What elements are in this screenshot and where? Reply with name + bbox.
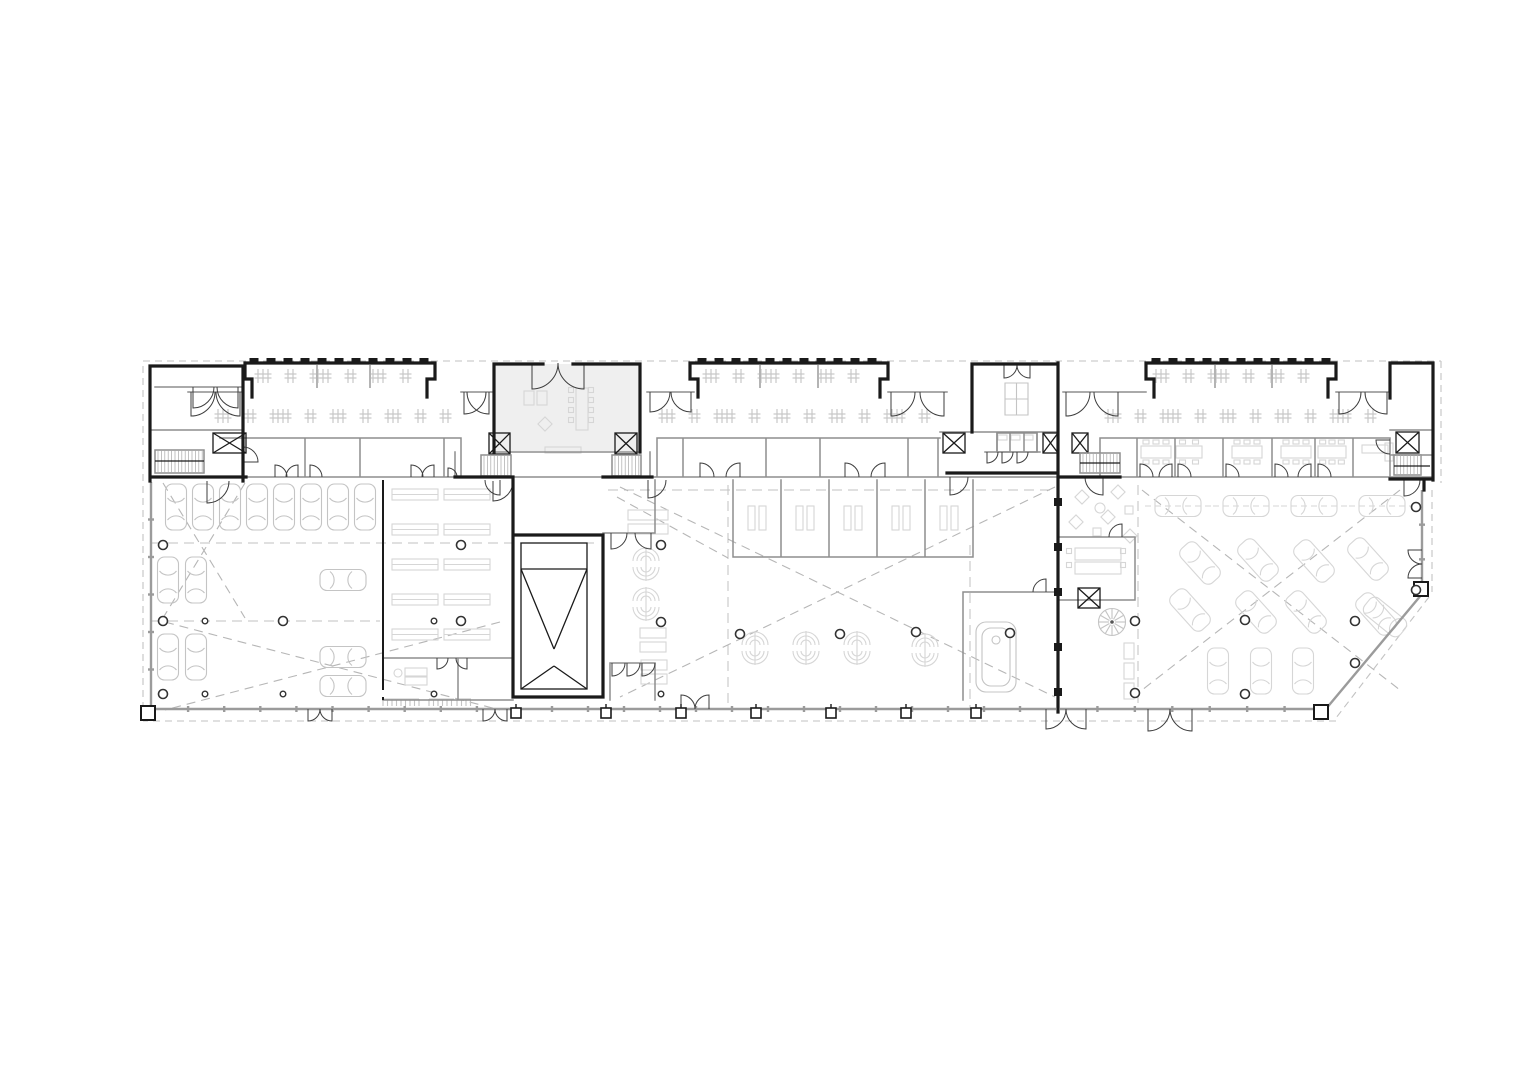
car-windshield (330, 678, 352, 695)
chair (1143, 460, 1149, 464)
equipment-cluster-icon (742, 631, 768, 665)
bike-icon (1365, 409, 1372, 423)
door-swing-icon (216, 392, 240, 416)
car-icon (355, 484, 376, 530)
lounge-diamond (1075, 490, 1089, 504)
bike-icon (724, 409, 731, 423)
workbench-icon (392, 594, 438, 605)
lounge-circle (394, 669, 402, 677)
workbench-icon (444, 489, 490, 500)
car-icon (1235, 536, 1281, 584)
chair (1254, 460, 1260, 464)
bike-icon (350, 369, 357, 383)
bike-icon (1218, 369, 1225, 383)
door-swing-icon (1178, 464, 1191, 477)
column-icon (1006, 629, 1015, 638)
car-icon (1293, 648, 1314, 694)
column-small-icon (658, 691, 664, 697)
column-icon (159, 617, 168, 626)
stair-icon (612, 455, 641, 476)
window-pier (318, 358, 327, 364)
colonnade-pier (901, 708, 911, 718)
door-swing-icon (1046, 709, 1066, 729)
car-icon (220, 484, 241, 530)
bike-icon (340, 409, 347, 423)
car-body (274, 484, 295, 530)
door-swing-icon (1085, 477, 1103, 495)
bike-icon (1183, 369, 1190, 383)
elevator-x (213, 433, 246, 453)
door-swing-icon (1033, 579, 1046, 592)
corner-pier (141, 706, 155, 720)
window-pier (284, 358, 293, 364)
window-pier (817, 358, 826, 364)
bike-icon (310, 409, 317, 423)
chair (1293, 440, 1299, 444)
car-windshield (1178, 598, 1205, 626)
bike-icon (823, 369, 830, 383)
door-swing-icon (1408, 550, 1422, 564)
bike-icon (375, 369, 382, 383)
car-body (1208, 648, 1229, 694)
bike-icon (1285, 409, 1292, 423)
wc-stalls (997, 433, 1037, 452)
door-swing-icon (611, 533, 627, 549)
bike-icon (325, 369, 332, 383)
car-icon (1213, 496, 1279, 517)
window-pier (800, 358, 809, 364)
column-icon (457, 617, 466, 626)
column-icon (159, 690, 168, 699)
soft-fill-layer (495, 364, 639, 451)
car-body (1293, 648, 1314, 694)
bike-icon (1280, 409, 1287, 423)
car-windshield (330, 649, 352, 666)
bike-icon (245, 409, 252, 423)
spiral-stair-icon (1099, 609, 1126, 636)
bike-icon (713, 369, 720, 383)
bike-icon (385, 409, 392, 423)
bench-pad (807, 506, 814, 530)
furniture-rect (640, 628, 666, 638)
furniture-rect (405, 677, 427, 685)
window-pier (267, 358, 276, 364)
bike-icon (1158, 369, 1165, 383)
window-pier (386, 358, 395, 364)
door-swing-icon (700, 463, 714, 477)
bike-icon (1310, 409, 1317, 423)
door-swing-icon (1339, 392, 1361, 414)
bike-icon (335, 409, 342, 423)
bike-icon (768, 369, 775, 383)
canopy-dashed-line (1336, 597, 1429, 718)
window-pier (834, 358, 843, 364)
door-swing-icon (275, 465, 287, 477)
door-swing-icon (495, 709, 507, 721)
column-icon (657, 618, 666, 627)
car-windshield (276, 498, 293, 520)
car-body (1235, 536, 1281, 584)
door-swing-icon (320, 709, 332, 721)
chair (1320, 460, 1326, 464)
car-icon (247, 484, 268, 530)
door-swing-icon (726, 463, 740, 477)
bike-icon (1305, 409, 1312, 423)
window-pier (851, 358, 860, 364)
bike-icon (1223, 369, 1230, 383)
car-windshield (160, 648, 177, 670)
car-icon (1283, 588, 1329, 636)
chair (1234, 440, 1240, 444)
bike-icon (440, 409, 447, 423)
bike-icon (320, 369, 327, 383)
bike-icon (839, 409, 846, 423)
bike-icon (1225, 409, 1232, 423)
meeting-table-icon (1176, 440, 1202, 464)
window-pier (868, 358, 877, 364)
bike-icon (733, 369, 740, 383)
bench-pad (844, 506, 851, 530)
door-swing-icon (612, 663, 625, 676)
bench-pad (796, 506, 803, 530)
colonnade-pier (601, 708, 611, 718)
colonnade-pier (751, 708, 761, 718)
furniture-rect (1385, 443, 1393, 461)
party-wall-node (1054, 643, 1062, 651)
door-swing-icon (635, 533, 651, 549)
window-pier (1203, 358, 1212, 364)
bike-icon (708, 369, 715, 383)
bike-icon (1170, 409, 1177, 423)
window-pier (1254, 358, 1263, 364)
window-pier (698, 358, 707, 364)
workbench-icon (444, 559, 490, 570)
stair-icon (481, 455, 511, 476)
door-swing-icon (1066, 709, 1086, 729)
equipment-cluster-icon (912, 633, 938, 667)
door-swing-icon (1298, 464, 1311, 477)
car-icon (328, 484, 349, 530)
bike-icon (919, 409, 926, 423)
meeting-table-icon (1141, 440, 1171, 464)
gym-bench-icon (796, 506, 814, 530)
bike-icon (1200, 409, 1207, 423)
bench-pad (940, 506, 947, 530)
window-pier (783, 358, 792, 364)
elevator-x (1043, 433, 1058, 453)
bench-pad (855, 506, 862, 530)
bike-icon (779, 409, 786, 423)
window-pier (403, 358, 412, 364)
chair (1234, 460, 1240, 464)
spiral-center (1110, 620, 1114, 624)
car-body (247, 484, 268, 530)
car-body (320, 676, 366, 697)
floor-plan-drawing (0, 0, 1528, 1080)
column-icon (1241, 690, 1250, 699)
chair (1329, 460, 1335, 464)
chair (1320, 440, 1326, 444)
window-pier (369, 358, 378, 364)
furniture-rect (405, 668, 427, 676)
party-wall-node (1054, 588, 1062, 596)
furniture-rect (1075, 562, 1121, 574)
column-icon (912, 628, 921, 637)
car-icon (320, 676, 366, 697)
bike-icon (774, 409, 781, 423)
elevator-x (1072, 433, 1088, 453)
corner-pier (1314, 705, 1328, 719)
car-body (301, 484, 322, 530)
door-swing-icon (191, 392, 215, 416)
elevator-x (1078, 588, 1100, 608)
column-icon (1412, 503, 1421, 512)
bike-icon (445, 409, 452, 423)
door-swing-icon (627, 663, 640, 676)
equipment-cluster-icon (793, 631, 819, 665)
window-pier (1169, 358, 1178, 364)
car-icon (158, 634, 179, 680)
window-pier (1271, 358, 1280, 364)
bike-icon (1188, 369, 1195, 383)
chair (1244, 460, 1250, 464)
car-body (320, 570, 366, 591)
column-icon (836, 630, 845, 639)
colonnade-pier (971, 708, 981, 718)
furniture-rect (1125, 506, 1133, 514)
car-windshield (188, 648, 205, 670)
furniture-rect (640, 642, 666, 652)
door-swing-icon (987, 452, 998, 463)
chair (1254, 440, 1260, 444)
furniture-rect (998, 435, 1007, 440)
elevator-icon (1043, 433, 1058, 453)
car-icon (1281, 496, 1347, 517)
furniture-rect (1093, 528, 1101, 536)
bike-icon (265, 369, 272, 383)
bike-icon (829, 409, 836, 423)
bike-icon (270, 409, 277, 423)
window-pier (1220, 358, 1229, 364)
car-body (1177, 539, 1223, 587)
bench-pad (892, 506, 899, 530)
bike-icon (1105, 409, 1112, 423)
door-swing-icon (1094, 392, 1118, 416)
bike-icon (763, 369, 770, 383)
door-swing-icon (1066, 392, 1090, 416)
column-small-icon (202, 691, 208, 697)
chair (1303, 440, 1309, 444)
car-body (1233, 588, 1279, 636)
bike-icon (749, 409, 756, 423)
door-swing-icon (411, 465, 423, 477)
car-body (220, 484, 241, 530)
bike-icon (1298, 369, 1305, 383)
car-icon (1233, 588, 1279, 636)
door-swing-icon (1109, 524, 1122, 537)
car-windshield (1364, 602, 1391, 630)
meeting-table-icon (1281, 440, 1311, 464)
bike-icon (828, 369, 835, 383)
window-pier (1288, 358, 1297, 364)
window-pier (1322, 358, 1331, 364)
column-small-icon (202, 618, 208, 624)
car-body (166, 484, 187, 530)
bike-icon (275, 409, 282, 423)
door-swing-icon (286, 465, 298, 477)
car-body (1251, 648, 1272, 694)
equipment-cluster-icon (844, 631, 870, 665)
door-swing-icon (1404, 480, 1420, 496)
furniture-rect (1124, 643, 1134, 659)
bike-icon (689, 409, 696, 423)
bike-icon (659, 409, 666, 423)
bike-icon (793, 369, 800, 383)
column-icon (159, 541, 168, 550)
bike-icon (773, 369, 780, 383)
car-icon (274, 484, 295, 530)
car-icon (193, 484, 214, 530)
bike-icon (1243, 369, 1250, 383)
car-icon (1177, 539, 1223, 587)
bike-icon (1335, 409, 1342, 423)
gym-bench-icon (892, 506, 910, 530)
party-wall-node (1054, 543, 1062, 551)
furniture-rect (1011, 435, 1020, 440)
skylight-room (1005, 383, 1028, 415)
bike-icon (1140, 409, 1147, 423)
car-windshield (168, 498, 185, 520)
glass-facade (1325, 594, 1422, 710)
car-windshield (195, 498, 212, 520)
table-top (1318, 446, 1346, 458)
bike-icon (290, 369, 297, 383)
bike-icon (1248, 369, 1255, 383)
window-pier (1152, 358, 1161, 364)
chair (1143, 440, 1149, 444)
window-pier (732, 358, 741, 364)
bike-icon (415, 409, 422, 423)
window-pier (1237, 358, 1246, 364)
bike-icon (703, 369, 710, 383)
bike-icon (784, 409, 791, 423)
door-swing-icon (1140, 464, 1153, 477)
meeting-table-icon (1232, 440, 1262, 464)
elevator-x (1396, 432, 1419, 453)
bike-icon (1250, 409, 1257, 423)
furniture-layer (158, 383, 1416, 706)
bike-icon (1135, 409, 1142, 423)
party-wall-node (1054, 498, 1062, 506)
bike-icon (285, 409, 292, 423)
equipment-cluster-icon (633, 547, 659, 581)
car-body (1291, 537, 1337, 585)
bike-icon (719, 409, 726, 423)
bike-icon (250, 409, 257, 423)
bike-icon (360, 409, 367, 423)
car-windshield (1294, 600, 1321, 628)
columns-layer (159, 503, 1421, 699)
furniture-rect (1124, 663, 1134, 679)
lobby-floor (495, 364, 639, 451)
car-windshield (1246, 548, 1273, 576)
workbench-icon (392, 524, 438, 535)
car-icon (1145, 496, 1211, 517)
chair (1283, 460, 1289, 464)
car-windshield (1302, 549, 1329, 577)
elevator-icon (1396, 432, 1419, 453)
furniture-rect (1024, 435, 1033, 440)
bike-icon (694, 409, 701, 423)
car-icon (1251, 648, 1272, 694)
stair-icon (1394, 455, 1421, 475)
column-icon (657, 541, 666, 550)
bike-icon (395, 409, 402, 423)
window-pier (250, 358, 259, 364)
chair (1163, 440, 1169, 444)
stair-outline (481, 455, 511, 476)
party-wall-node (1054, 688, 1062, 696)
chair (1067, 563, 1072, 568)
car-windshield (303, 498, 320, 520)
bike-icon (1273, 369, 1280, 383)
bench-pad (951, 506, 958, 530)
door-swing-icon (1226, 464, 1239, 477)
car-icon (1345, 535, 1391, 583)
bike-icon (1220, 409, 1227, 423)
workbench-icon (392, 629, 438, 640)
table-top (1141, 446, 1171, 458)
car-icon (1291, 537, 1337, 585)
vehicle-ramp-arrows (521, 543, 587, 689)
bike-icon (1165, 409, 1172, 423)
window-pier (766, 358, 775, 364)
car-windshield (1356, 547, 1383, 575)
bike-icon (285, 369, 292, 383)
bench-pad (759, 506, 766, 530)
bike-icon (405, 369, 412, 383)
gym-bench-icon (748, 506, 766, 530)
table-top (1176, 446, 1202, 458)
door-swing-icon (310, 465, 322, 477)
furniture-rect (628, 510, 668, 520)
door-swing-icon (920, 392, 944, 416)
bike-icon (1230, 409, 1237, 423)
gym-bench-icon (844, 506, 862, 530)
door-swing-icon (681, 695, 695, 709)
car-windshield (222, 498, 239, 520)
car-windshield (1295, 662, 1312, 684)
column-small-icon (431, 618, 437, 624)
column-small-icon (431, 691, 437, 697)
car-windshield (249, 498, 266, 520)
table-top (1232, 446, 1262, 458)
bike-icon (1340, 409, 1347, 423)
door-swing-icon (1002, 452, 1013, 463)
car-icon (1208, 648, 1229, 694)
door-swing-icon (1159, 464, 1172, 477)
door-swing-icon (1408, 564, 1422, 578)
window-pier (749, 358, 758, 364)
car-body (1167, 586, 1213, 634)
door-swing-icon (648, 480, 666, 498)
bike-icon (1208, 369, 1215, 383)
furniture-rect (1075, 548, 1121, 560)
column-icon (1241, 616, 1250, 625)
column-icon (457, 541, 466, 550)
bike-icon (1255, 409, 1262, 423)
gym-bench-icon (940, 506, 958, 530)
